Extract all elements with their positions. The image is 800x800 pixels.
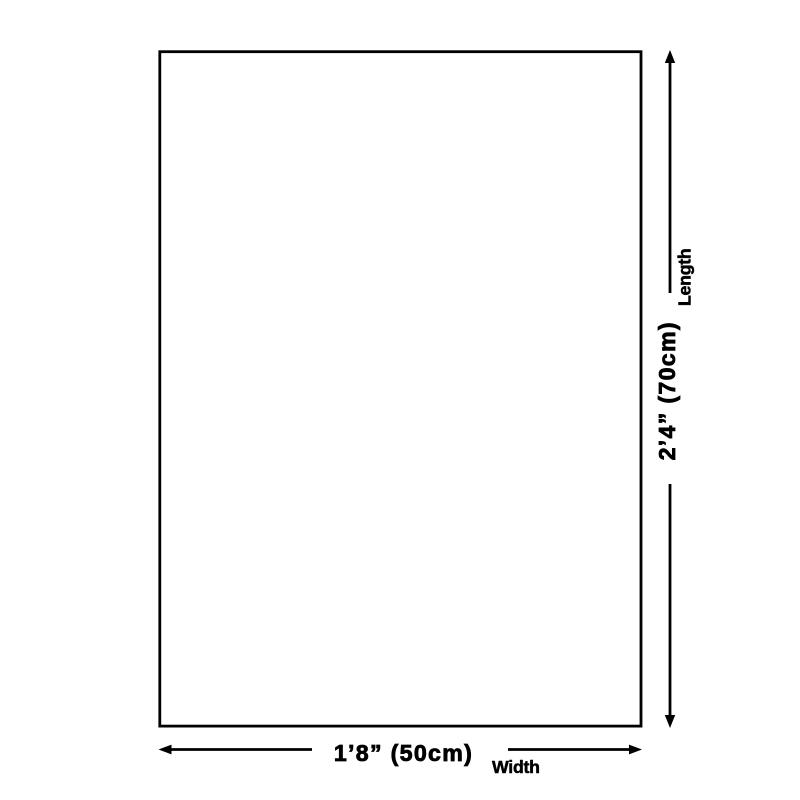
svg-text:1’8” (50cm): 1’8” (50cm) [334, 740, 473, 766]
svg-text:2’4” (70cm): 2’4” (70cm) [654, 321, 680, 460]
svg-text:Length: Length [675, 249, 695, 306]
svg-text:Width: Width [492, 757, 540, 777]
